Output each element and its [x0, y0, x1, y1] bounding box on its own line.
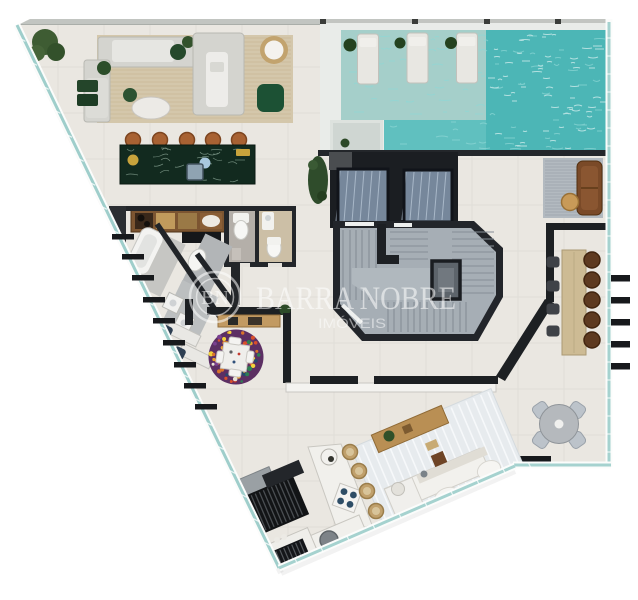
- svg-text:BARRA NOBRE: BARRA NOBRE: [256, 281, 456, 317]
- svg-text:BN: BN: [201, 287, 229, 309]
- svg-text:IMÓVEIS: IMÓVEIS: [318, 315, 386, 331]
